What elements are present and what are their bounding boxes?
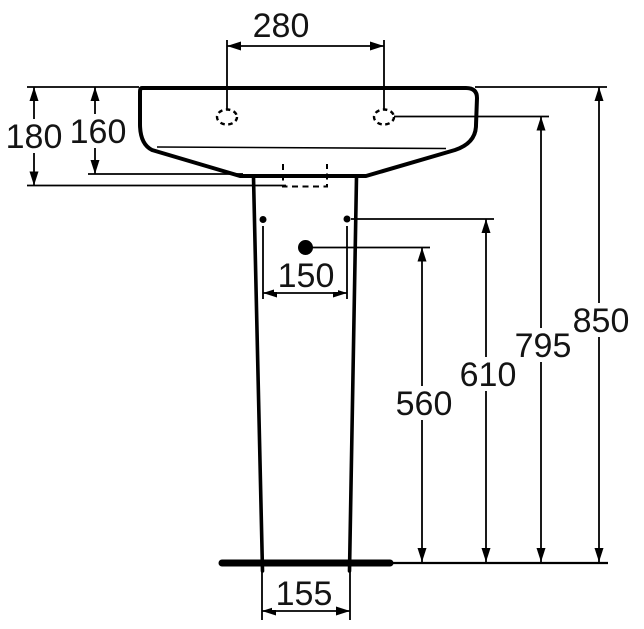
dim-280-arrow-left	[227, 42, 241, 51]
dim-150-label: 150	[278, 257, 335, 295]
tap-hole-right	[374, 110, 394, 125]
dim-850-label: 850	[573, 302, 630, 340]
dimension-150: 150	[263, 226, 347, 299]
basin	[140, 88, 477, 187]
dim-850-arrow-down	[595, 548, 604, 562]
tap-hole-left	[217, 110, 237, 125]
dim-795-label: 795	[515, 327, 572, 365]
dim-160-arrow-down	[91, 160, 100, 174]
fixing-hole-left-dot	[260, 216, 267, 223]
dim-560-arrow-up	[418, 248, 427, 262]
washbasin-dimension-diagram: 280 180 160 850	[0, 0, 644, 629]
dim-160-arrow-up	[91, 87, 100, 101]
diagram-svg: 280 180 160 850	[0, 0, 644, 629]
dimension-155: 155	[262, 567, 350, 620]
waste-hole-dot	[298, 240, 313, 255]
dim-280-label: 280	[253, 7, 310, 45]
dim-560-label: 560	[396, 385, 453, 423]
pedestal-holes	[260, 216, 351, 256]
dim-280-arrow-right	[370, 42, 384, 51]
dim-610-arrow-down	[482, 548, 491, 562]
dim-155-label: 155	[276, 575, 333, 613]
fixing-hole-right-dot	[344, 216, 351, 223]
dim-795-arrow-up	[537, 117, 546, 131]
dim-850-arrow-up	[595, 87, 604, 101]
dim-180-arrow-up	[30, 87, 39, 101]
dim-610-label: 610	[460, 356, 517, 394]
dim-180-label: 180	[6, 118, 63, 156]
dim-180-arrow-down	[30, 172, 39, 186]
basin-outline	[140, 88, 477, 176]
dim-160-label: 160	[70, 113, 127, 151]
dim-795-arrow-down	[537, 548, 546, 562]
pedestal	[254, 177, 357, 571]
pedestal-left-edge	[254, 177, 263, 571]
dim-610-arrow-up	[482, 219, 491, 233]
dimension-850: 850	[475, 87, 633, 562]
dim-155-arrow-right	[336, 607, 350, 616]
dim-560-arrow-down	[418, 548, 427, 562]
pedestal-right-edge	[350, 177, 357, 571]
